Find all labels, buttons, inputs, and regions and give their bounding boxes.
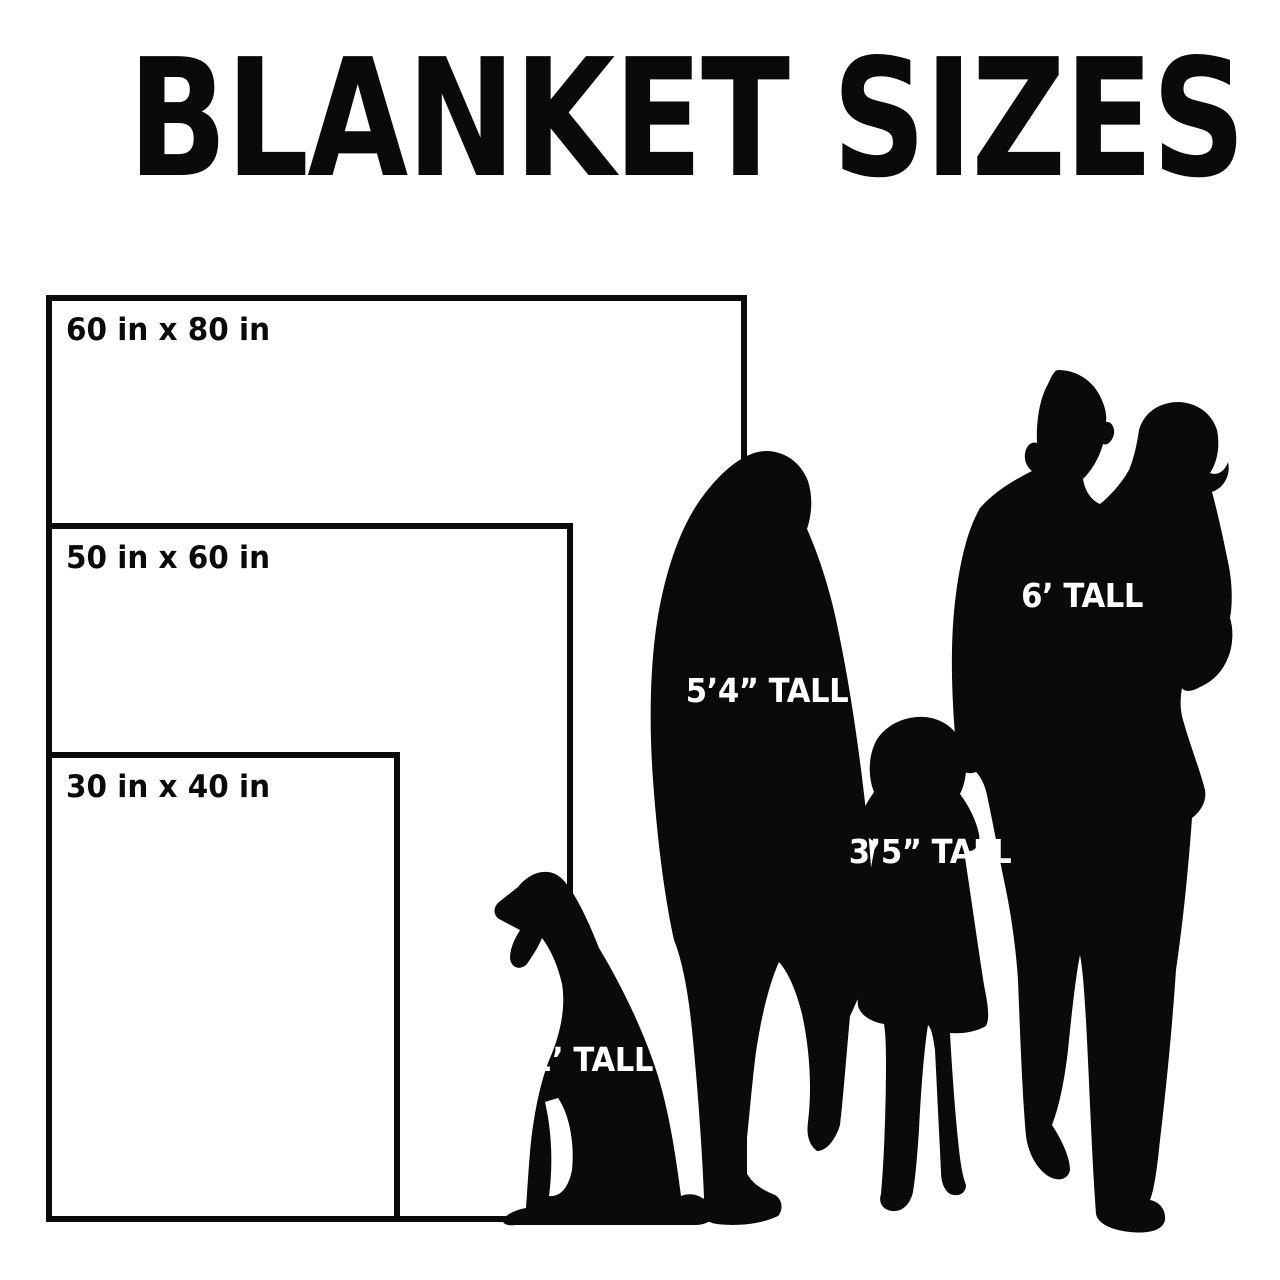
dog-height-label: 2’ TALL	[531, 1043, 653, 1076]
man-with-toddler-silhouette-icon	[952, 370, 1233, 1233]
woman-height-label: 5’4” TALL	[686, 674, 848, 707]
silhouette-figures	[0, 0, 1280, 1280]
woman-silhouette-icon	[651, 451, 873, 1225]
child-silhouette-icon	[857, 717, 988, 1211]
child-height-label: 3’5” TALL	[849, 835, 1011, 868]
man-height-label: 6’ TALL	[1021, 579, 1143, 612]
blanket-sizes-infographic: BLANKET SIZES 60 in x 80 in 50 in x 60 i…	[0, 0, 1280, 1280]
